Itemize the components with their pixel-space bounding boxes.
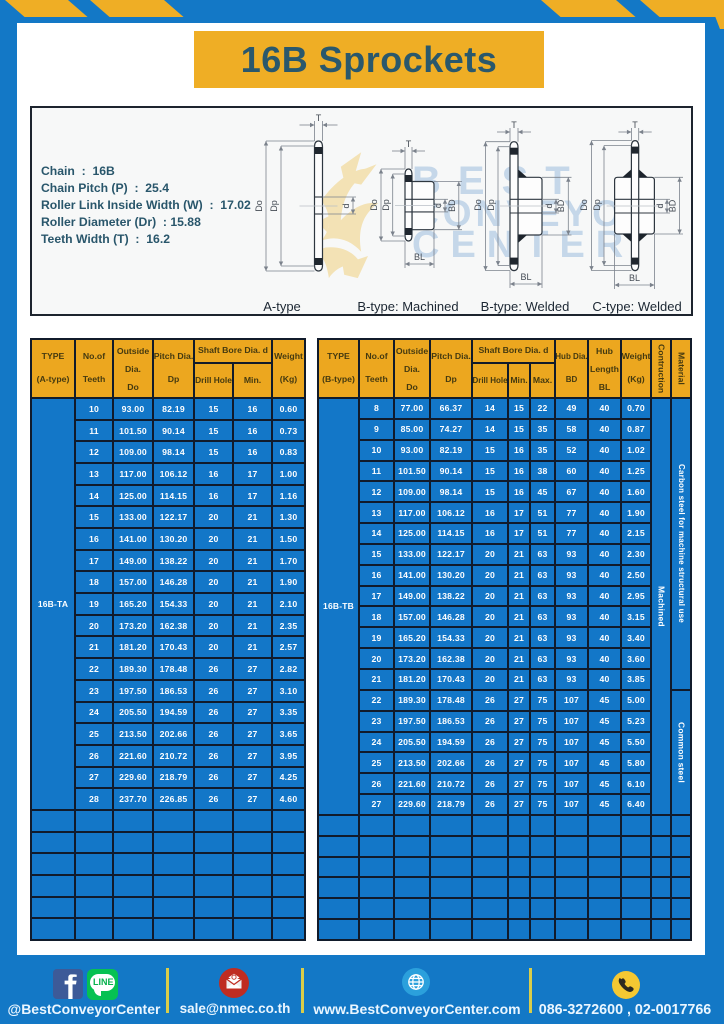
svg-text:BD: BD (556, 199, 566, 212)
svg-text:Do: Do (254, 200, 264, 212)
svg-text:d: d (433, 203, 443, 208)
svg-text:Dp: Dp (381, 199, 391, 211)
svg-text:T: T (632, 120, 638, 130)
svg-text:d: d (655, 203, 665, 208)
svg-text:BD: BD (668, 199, 678, 212)
svg-text:T: T (511, 120, 517, 130)
svg-text:BD: BD (447, 199, 457, 212)
svg-text:T: T (406, 139, 412, 149)
svg-text:BL: BL (629, 273, 640, 283)
svg-text:Do: Do (473, 199, 483, 211)
svg-text:BL: BL (520, 272, 531, 282)
svg-text:A-type: A-type (263, 299, 301, 314)
svg-text:Do: Do (579, 199, 589, 211)
svg-text:Dp: Dp (592, 199, 602, 211)
svg-text:B-type: Machined: B-type: Machined (357, 299, 458, 314)
svg-text:Do: Do (369, 199, 379, 211)
svg-text:C-type: Welded: C-type: Welded (592, 299, 681, 314)
svg-text:d: d (544, 203, 554, 208)
svg-text:B-type: Welded: B-type: Welded (481, 299, 570, 314)
svg-text:T: T (316, 113, 322, 123)
svg-text:d: d (341, 203, 351, 208)
svg-text:BL: BL (414, 252, 425, 262)
svg-text:Dp: Dp (269, 200, 279, 212)
svg-text:Dp: Dp (486, 199, 496, 211)
